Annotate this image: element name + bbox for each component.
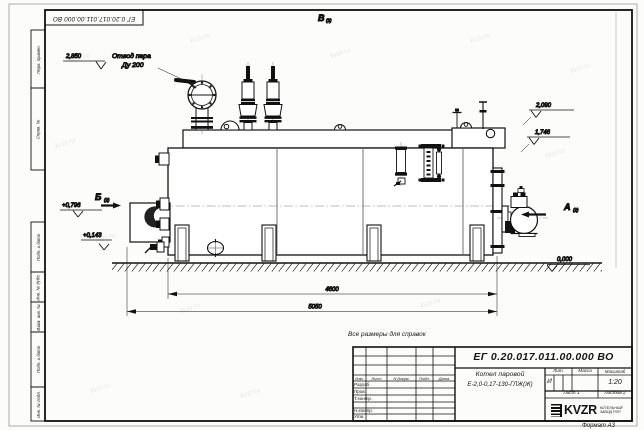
view-label-b-ref: (2) bbox=[104, 198, 110, 203]
nozzle bbox=[160, 198, 169, 210]
drain-valve bbox=[150, 244, 157, 250]
elevation-2090: 2,090 bbox=[535, 103, 552, 109]
product-name: Котел паровой bbox=[455, 371, 545, 380]
col-izm: Изм. bbox=[353, 376, 366, 382]
title-doc-number: ЕГ 0.20.017.011.00.000 ВО bbox=[456, 349, 631, 366]
product-code: Е-2,0-0,17-130-ГЛЖ(Ж) bbox=[455, 381, 545, 390]
dim-4600: 4600 bbox=[325, 287, 339, 293]
boiler-body-group bbox=[160, 128, 512, 255]
col-data: Дата bbox=[433, 376, 455, 382]
margin-stamp-podp-data-2: Подп. и дата bbox=[31, 332, 45, 387]
elevation-0000: 0,000 bbox=[557, 257, 573, 263]
top-doc-stamp: ЕГ 0.20.017.011.00.000 ВО bbox=[45, 10, 143, 25]
company-name: КОТЕЛЬНЫЙ ЗАВОД РЭП bbox=[600, 406, 623, 415]
pump-casing bbox=[511, 207, 538, 234]
lit-header: Лит. bbox=[545, 369, 572, 376]
col-list: Лист bbox=[366, 376, 387, 382]
margin-stamp-sprav-no: Справ. № bbox=[31, 88, 45, 170]
col-ndokum: N докум. bbox=[387, 376, 416, 382]
logo-word: KVZR bbox=[564, 403, 597, 417]
front-smoke-box bbox=[130, 153, 170, 253]
company-logo: KVZR КОТЕЛЬНЫЙ ЗАВОД РЭП bbox=[551, 402, 631, 418]
elevation-1746: 1,746 bbox=[535, 130, 551, 136]
dome bbox=[221, 121, 239, 130]
safety-valves bbox=[239, 62, 282, 130]
col-podp: Подп. bbox=[416, 376, 433, 382]
company-line2: ЗАВОД РЭП bbox=[600, 410, 623, 414]
nozzle bbox=[160, 218, 169, 230]
dim-5050: 5050 bbox=[308, 305, 322, 311]
elevation-2850: 2,850 bbox=[65, 54, 82, 60]
nozzle bbox=[159, 153, 169, 165]
row-utv: Утв. bbox=[354, 415, 386, 421]
margin-stamp-podp-data-1: Подп. и дата bbox=[31, 222, 45, 272]
margin-stamp-inv-dubl: Инв. № дубл. bbox=[31, 272, 45, 302]
view-label-a: А bbox=[563, 202, 571, 212]
row-razrab: Разраб. bbox=[354, 382, 386, 388]
boiler-top-platform bbox=[183, 130, 460, 148]
lit-value: И bbox=[545, 376, 554, 389]
margin-stamp-perv-primen: Перв. примен. bbox=[31, 30, 45, 88]
margin-stamp-vzam-inv: Взам. инв. № bbox=[31, 302, 45, 332]
elevation-0796: +0,796 bbox=[62, 203, 81, 209]
boiler-shell bbox=[168, 148, 493, 255]
mass-header: Масса bbox=[572, 369, 598, 376]
valve-handwheel bbox=[176, 80, 194, 82]
view-label-v-ref: (2) bbox=[326, 18, 332, 23]
row-prov: Пров. bbox=[354, 389, 386, 395]
reference-note: Все размеры для справок bbox=[348, 331, 488, 340]
sheet-count: Листов 2 bbox=[598, 392, 632, 399]
drawing-sheet: kvzr.ru kvzr.ru kvzr.ru kvzr.ru kvzr.ru … bbox=[0, 0, 644, 430]
mass-value bbox=[572, 376, 598, 389]
sheet-number: Лист 1 bbox=[545, 392, 598, 399]
vent-elbow bbox=[486, 129, 494, 137]
steam-outlet-valve bbox=[176, 74, 216, 134]
view-label-a-ref: (2) bbox=[573, 208, 579, 213]
format-label: Формат А3 bbox=[565, 422, 632, 430]
ground-line bbox=[112, 263, 602, 272]
view-label-v: В bbox=[318, 13, 325, 23]
boiler-rear-top-box bbox=[452, 128, 505, 148]
scale-header: Масштаб bbox=[598, 369, 632, 376]
scale-value: 1:20 bbox=[598, 376, 632, 389]
ground-hatch bbox=[112, 264, 602, 272]
view-arrow-b bbox=[113, 203, 121, 209]
callout-steam-outlet: Отвод пара bbox=[112, 52, 151, 60]
view-label-b: Б bbox=[95, 192, 102, 202]
rear-pump-group bbox=[491, 168, 549, 253]
elevation-0143: +0,143 bbox=[83, 233, 102, 239]
pump-motor bbox=[511, 197, 527, 208]
logo-mark-icon bbox=[551, 404, 562, 417]
margin-stamp-inv-podl: Инв. № подл. bbox=[31, 387, 45, 421]
row-tkontr: Т.контр. bbox=[354, 396, 386, 402]
callout-steam-dn: Ду 200 bbox=[121, 62, 144, 69]
